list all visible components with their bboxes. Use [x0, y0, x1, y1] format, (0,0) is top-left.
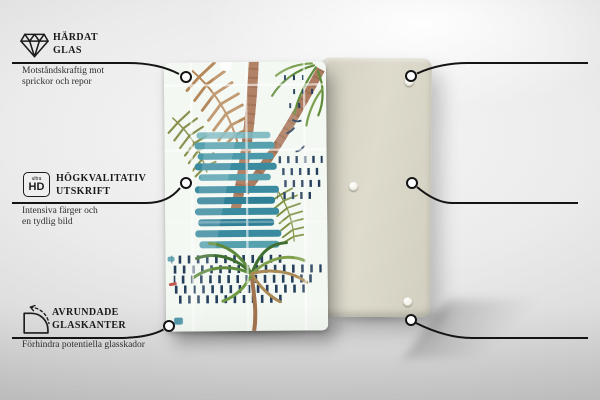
ultra-hd-icon: ultra HD	[23, 172, 50, 197]
feature-desc-line: sprickor och repor	[22, 77, 104, 88]
callout-line	[417, 63, 588, 74]
callout-anchor	[407, 178, 417, 188]
ultra-hd-big-text: HD	[29, 182, 45, 193]
callout-line	[417, 187, 578, 203]
feature-desc-line: Förhindra potentiella glasskador	[22, 340, 145, 351]
feature-desc-line: Intensiva färger och	[22, 206, 98, 217]
callout-line	[416, 323, 588, 338]
feature-title-line: HÖGKVALITATIV	[56, 172, 146, 185]
callout-anchor	[406, 315, 416, 325]
callout-anchor	[181, 178, 191, 188]
rounded-corner-icon	[19, 304, 50, 340]
feature-title-line: UTSKRIFT	[56, 185, 146, 198]
callout-anchor	[406, 71, 416, 81]
callout-anchor	[164, 321, 174, 331]
feature-title-line: GLAS	[53, 44, 98, 57]
feature-title-line: HÄRDAT	[53, 31, 98, 44]
feature-desc-line: en tydlig bild	[22, 217, 98, 228]
callout-anchor	[181, 72, 191, 82]
feature-desc-line: Motståndskraftig mot	[22, 66, 104, 77]
feature-title-line: GLASKANTER	[52, 319, 126, 332]
diamond-icon	[19, 31, 50, 64]
feature-title-line: AVRUNDADE	[52, 306, 126, 319]
product-infographic: HÄRDAT GLAS Motståndskraftig mot spricko…	[0, 0, 600, 400]
